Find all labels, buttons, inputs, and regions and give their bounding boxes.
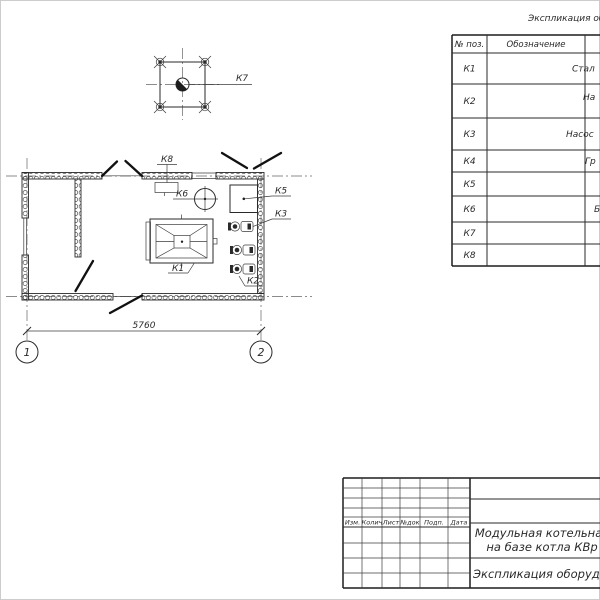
spec-row-pos: К8 [463,251,475,261]
axis-lines [6,158,312,341]
spec-col-pos: № поз. [454,40,485,50]
drawing-sheet: К1 К6 К5 К3 [0,0,600,600]
tb-project-title-line2: на базе котла КВр [486,540,597,554]
spec-row-pos: К2 [463,97,475,107]
tb-col-list: Лист [382,519,400,527]
spec-row-name: Насос [566,130,594,140]
spec-row-pos: К4 [463,157,475,167]
spec-row-pos: К7 [463,229,475,239]
label-k2: К2 [247,277,259,287]
label-k7: К7 [236,74,248,84]
spec-table-title: Экспликация обор [527,14,600,24]
dimension-5760: 5760 [23,321,265,335]
spec-row-name: Б [594,205,600,215]
spec-row-name: Гр [585,157,596,167]
spec-row-pos: К6 [463,205,475,215]
title-block: Изм. Колич Лист №док Подп. Дата Модульна… [343,478,600,588]
spec-row-name: Стал [572,65,595,75]
label-k8: К8 [161,155,173,165]
dimension-text: 5760 [133,321,156,331]
tb-col-kolich: Колич [362,519,383,527]
spec-row-pos: К5 [463,180,475,190]
spec-col-designation: Обозначение [507,40,566,50]
spec-row-pos: К3 [463,130,475,140]
tb-col-izm: Изм. [345,519,360,527]
axis-2-number: 2 [258,346,265,359]
spec-row-pos: К1 [463,65,475,75]
label-k5: К5 [275,187,287,197]
label-k1: К1 [172,264,184,274]
walls [22,173,264,301]
tb-col-ndok: №док [399,519,419,527]
tb-project-title-line1: Модульная котельная [475,526,600,540]
boiler-k1: К1 [146,215,217,275]
label-k3: К3 [275,210,287,220]
spec-table: Экспликация обор № поз. Обозначение К1 К… [452,14,600,266]
tb-col-podp: Подп. [424,519,444,527]
tb-doc-name: Экспликация оборудован [472,567,600,581]
wall-openings [102,173,216,297]
axis-1-number: 1 [24,346,31,359]
axis-bubble-2: 2 [250,341,272,363]
drawing-canvas: К1 К6 К5 К3 [0,0,600,600]
window-left-wall [22,218,29,255]
tb-col-data: Дата [450,519,468,527]
fan-k6: К6 [173,186,218,212]
axis-bubble-1: 1 [16,341,38,363]
spec-row-name: На [583,93,595,103]
chimney-detail-k7: К7 [146,48,252,120]
